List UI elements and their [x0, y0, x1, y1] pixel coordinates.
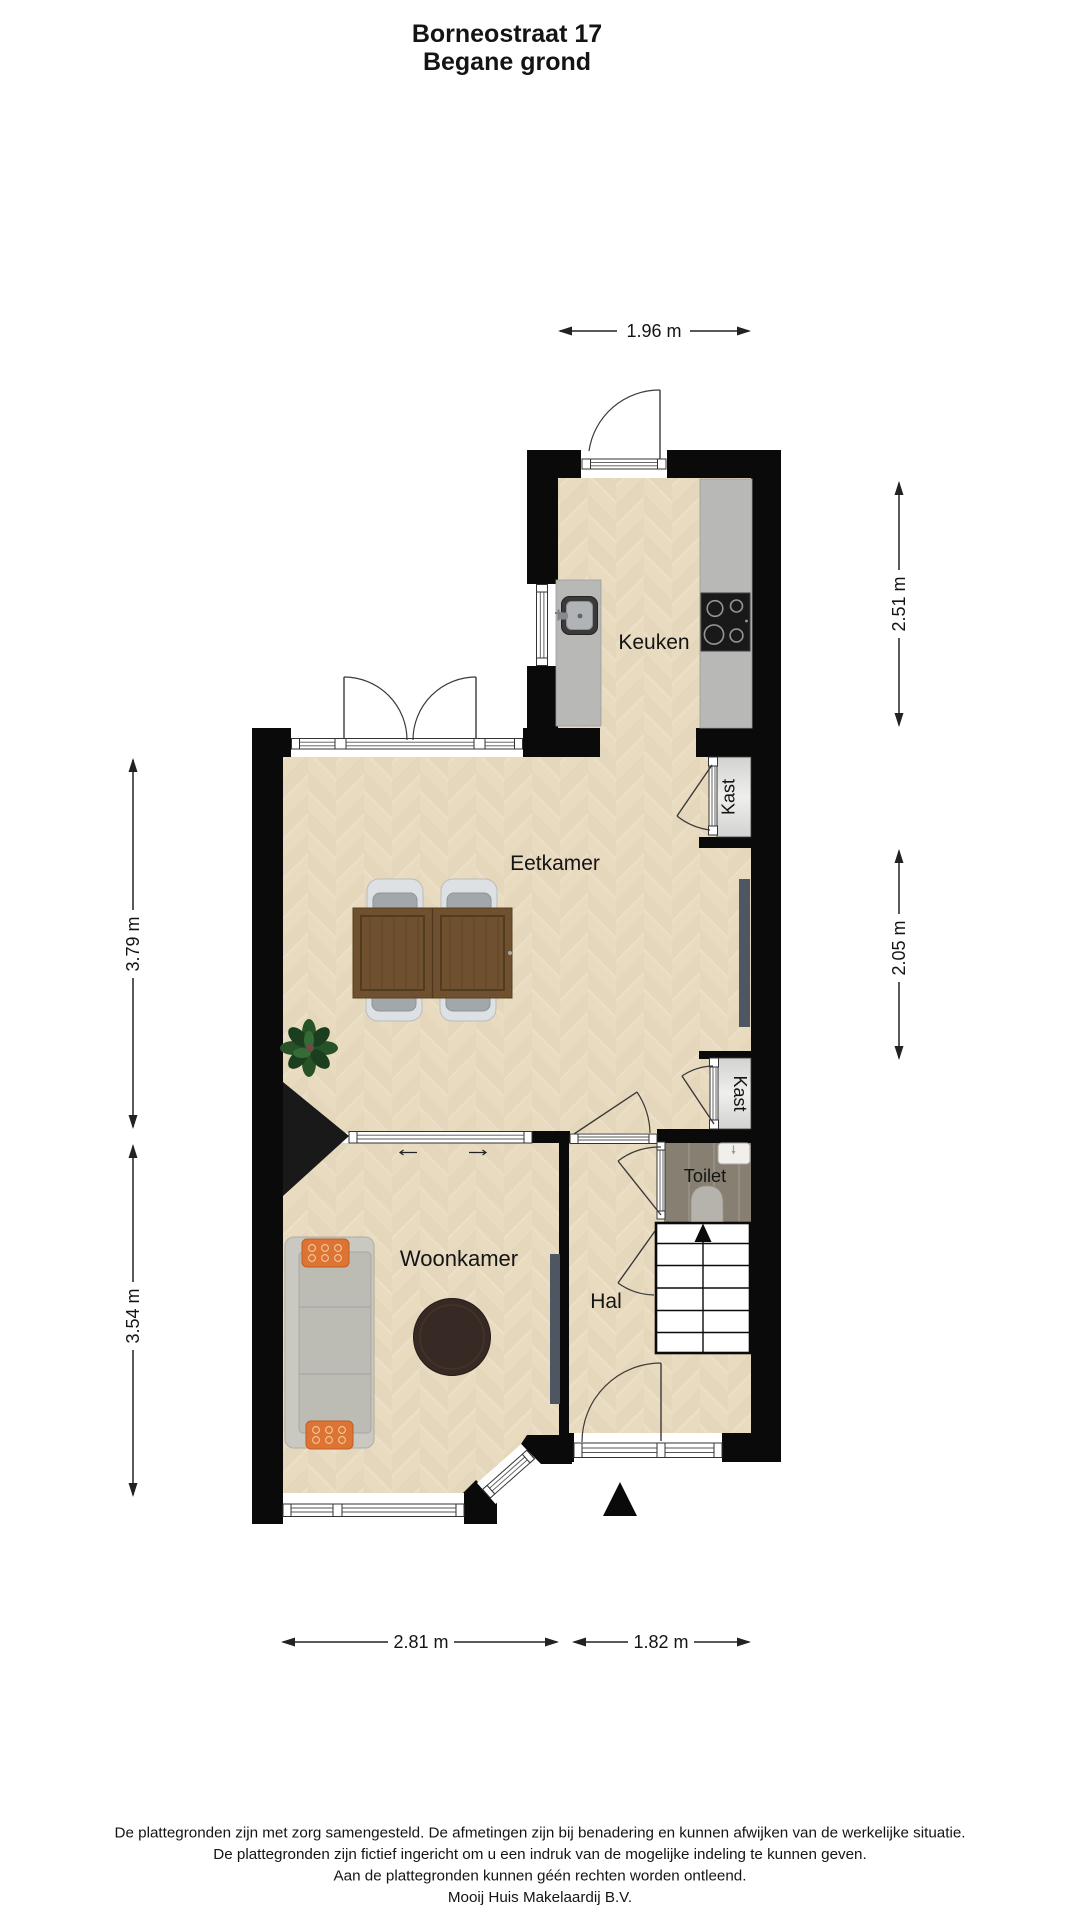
- svg-text:Toilet: Toilet: [684, 1166, 726, 1186]
- svg-text:2.81 m: 2.81 m: [393, 1632, 448, 1652]
- svg-text:Woonkamer: Woonkamer: [400, 1246, 518, 1271]
- svg-text:Borneostraat 17: Borneostraat 17: [412, 20, 602, 48]
- svg-text:De plattegronden zijn met zorg: De plattegronden zijn met zorg samengest…: [115, 1825, 966, 1842]
- svg-text:1.82 m: 1.82 m: [633, 1632, 688, 1652]
- svg-text:Hal: Hal: [590, 1290, 622, 1313]
- svg-text:Kast: Kast: [730, 1075, 750, 1111]
- svg-text:Keuken: Keuken: [618, 631, 689, 654]
- svg-text:Mooij Huis Makelaardij B.V.: Mooij Huis Makelaardij B.V.: [448, 1889, 632, 1906]
- svg-text:Eetkamer: Eetkamer: [510, 852, 600, 875]
- svg-text:3.79 m: 3.79 m: [123, 916, 143, 971]
- svg-text:3.54 m: 3.54 m: [123, 1288, 143, 1343]
- svg-text:1.96 m: 1.96 m: [626, 321, 681, 341]
- svg-text:2.05 m: 2.05 m: [889, 920, 909, 975]
- svg-text:Begane grond: Begane grond: [423, 48, 591, 76]
- svg-text:2.51 m: 2.51 m: [889, 576, 909, 631]
- svg-text:De plattegronden zijn fictief: De plattegronden zijn fictief ingericht …: [213, 1846, 866, 1863]
- svg-text:Kast: Kast: [719, 779, 739, 815]
- svg-text:Aan de plattegronden kunnen gé: Aan de plattegronden kunnen géén rechten…: [334, 1868, 747, 1885]
